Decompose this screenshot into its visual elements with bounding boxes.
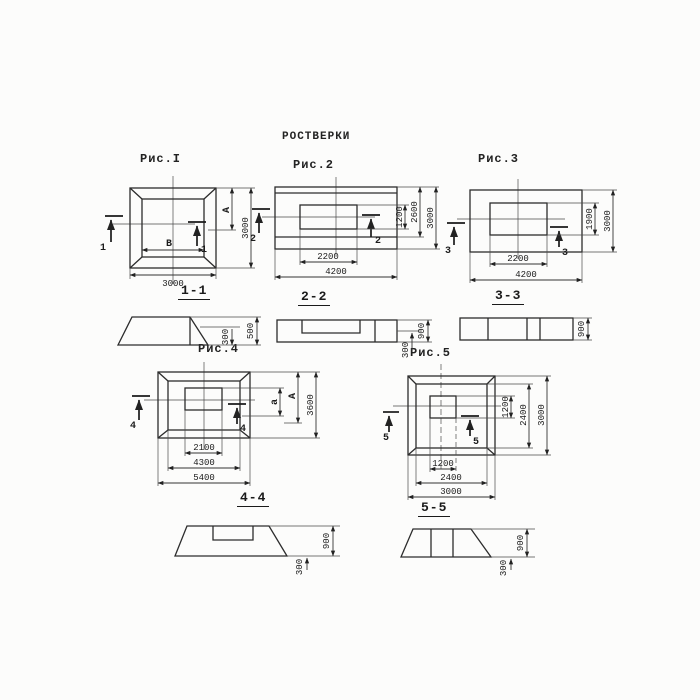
section3-total-dim: 900 — [577, 321, 587, 337]
section4-label: 4-4 — [237, 490, 269, 507]
fig3-label: Рис.3 — [478, 152, 519, 166]
section1-drawing: 300 500 — [110, 305, 275, 355]
fig4-mid-height-dim: А — [288, 393, 299, 399]
fig3-cut-mark-left: 3 — [445, 246, 451, 257]
fig2-cut-mark-left: 2 — [250, 234, 256, 245]
fig1-cut-mark-right: 1 — [201, 245, 207, 256]
fig3-outer-width-dim: 4200 — [515, 270, 537, 280]
fig4-mid-width-dim: 4300 — [193, 458, 215, 468]
section1-label: 1-1 — [178, 283, 210, 300]
fig4-outer-height-dim: 3600 — [306, 394, 316, 416]
section5-total-dim: 900 — [516, 535, 526, 551]
fig2-label: Рис.2 — [293, 158, 334, 172]
fig3-cut-mark-right: 3 — [562, 248, 568, 259]
fig5-mid-height-dim: 2400 — [519, 404, 529, 426]
fig3-outer-height-dim: 3000 — [603, 210, 613, 232]
section1-edge-dim: 300 — [221, 329, 231, 345]
fig4-cut-mark-right: 4 — [240, 424, 246, 435]
fig5-outer-width-dim: 3000 — [440, 487, 462, 497]
section3-drawing: 900 — [455, 310, 620, 350]
fig1-inner-height-dim: А — [222, 207, 233, 213]
section5-drawing: 300 900 — [393, 515, 553, 573]
fig1-label: Рис.I — [140, 152, 181, 166]
fig5-mid-width-dim: 2400 — [440, 473, 462, 483]
fig1-cut-mark-left: 1 — [100, 243, 106, 254]
fig2-inner-height-dim: 1200 — [395, 206, 405, 228]
fig4-inner-height-dim: а — [270, 399, 281, 405]
fig2-cut-mark-right: 2 — [375, 236, 381, 247]
fig1-inner-width-dim: В — [166, 239, 172, 250]
section2-drawing: 300 900 — [272, 308, 447, 360]
drawing-title: РОСТВЕРКИ — [282, 131, 350, 143]
fig4-outer-width-dim: 5400 — [193, 473, 215, 483]
section4-drawing: 300 900 — [155, 512, 355, 574]
fig3-inner-width-dim: 2200 — [507, 254, 529, 264]
section3-label: 3-3 — [492, 288, 524, 305]
fig2-outer-height-dim: 3000 — [426, 207, 436, 229]
fig2-outer-width-dim: 4200 — [325, 267, 347, 277]
fig5-inner-width-dim: 1200 — [432, 459, 454, 469]
section2-label: 2-2 — [298, 289, 330, 306]
fig1-plan-drawing: 1 1 В 3000 А 3000 — [95, 172, 275, 289]
fig5-inner-height-dim: 1200 — [501, 396, 511, 418]
fig5-cut-mark-left: 5 — [383, 433, 389, 444]
fig2-plan-drawing: 2 2 1200 2600 3000 2200 4200 — [250, 175, 445, 287]
fig3-plan-drawing: 3 3 1900 3000 2200 4200 — [445, 175, 630, 290]
section4-total-dim: 900 — [322, 533, 332, 549]
section2-edge-dim: 300 — [401, 342, 411, 358]
fig2-mid-height-dim: 2600 — [410, 201, 420, 223]
fig4-plan-drawing: 4 4 а А 3600 2100 4300 5400 — [130, 358, 345, 493]
section2-total-dim: 900 — [417, 323, 427, 339]
fig5-plan-drawing: 5 5 1200 2400 3000 1200 2400 3000 — [383, 360, 593, 502]
section4-edge-dim: 300 — [295, 559, 305, 575]
fig2-inner-width-dim: 2200 — [317, 252, 339, 262]
fig5-outer-height-dim: 3000 — [537, 404, 547, 426]
fig3-inner-height-dim: 1900 — [585, 208, 595, 230]
fig5-cut-mark-right: 5 — [473, 437, 479, 448]
section1-total-dim: 500 — [246, 323, 256, 339]
section5-edge-dim: 300 — [499, 560, 509, 576]
fig4-inner-width-dim: 2100 — [193, 443, 215, 453]
fig4-cut-mark-left: 4 — [130, 421, 136, 432]
